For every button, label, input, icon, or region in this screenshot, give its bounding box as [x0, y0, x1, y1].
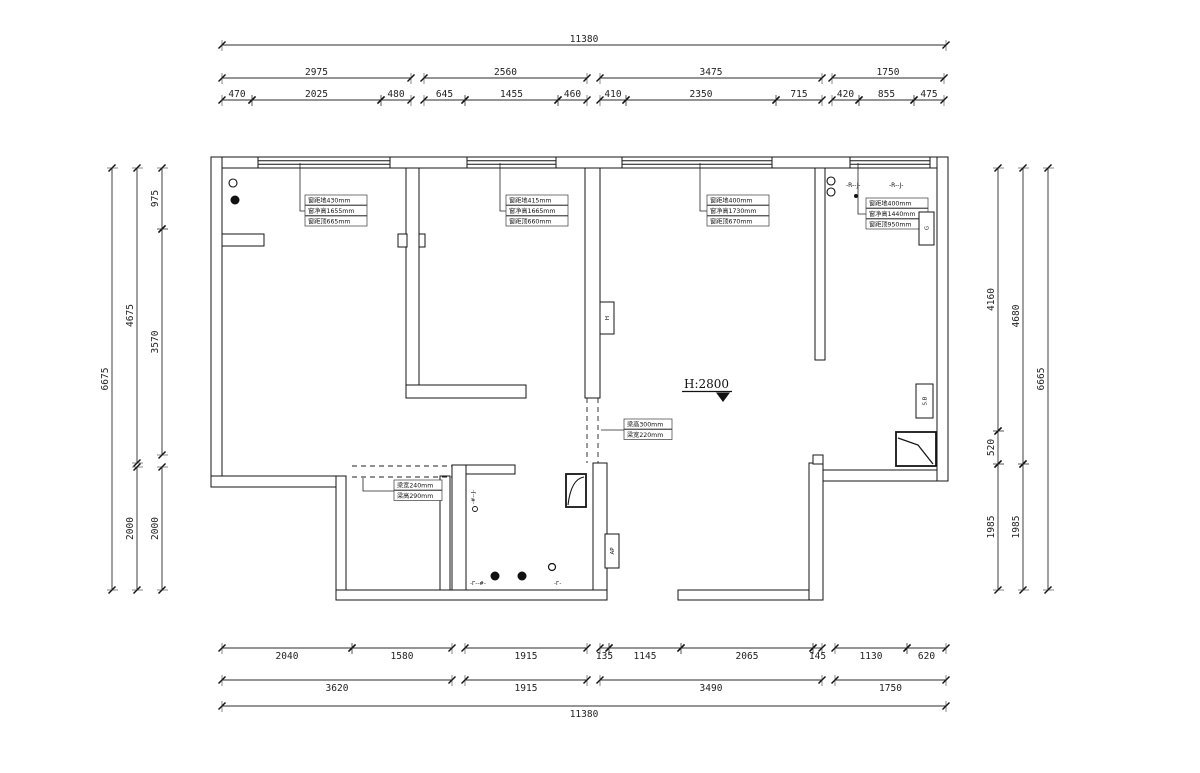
- annotation-text: 窗距地400mm: [869, 200, 911, 208]
- leader-line: [363, 478, 394, 491]
- dim-label: 2560: [494, 67, 517, 78]
- wall-nub-right: [419, 234, 425, 247]
- hollow-dot-symbol: [229, 179, 237, 187]
- dim-label: 3475: [700, 67, 723, 78]
- leader-line: [700, 163, 707, 211]
- dim-label: 1915: [515, 683, 538, 694]
- annotation-text: 窗距顶950mm: [869, 221, 911, 229]
- dim-label: 1750: [879, 683, 902, 694]
- pier-top-left: [222, 234, 264, 246]
- hollow-dot-symbol: [827, 188, 835, 196]
- wall-box-ap-label: AP: [610, 547, 616, 555]
- wall-box-g-label: G: [925, 226, 931, 230]
- dim-label: 470: [228, 89, 245, 100]
- wall-lowerright-notch: [813, 455, 823, 464]
- dim-label: 4675: [125, 304, 136, 327]
- gas-meter-dot: [473, 507, 478, 512]
- window-1: [258, 157, 390, 168]
- window-frame: [258, 157, 390, 168]
- small-dot-symbol: [854, 194, 858, 198]
- annotation-text: 窗距地415mm: [509, 197, 551, 205]
- filled-dot-symbol: [491, 572, 500, 581]
- dim-label: 6675: [100, 368, 111, 391]
- annotation-win2: 窗距地415mm 窗净高1665mm 窗距顶660mm: [500, 163, 568, 226]
- dim-label: 2975: [305, 67, 328, 78]
- wall-nub-left: [398, 234, 407, 247]
- dim-label: 1455: [500, 89, 523, 100]
- annotation-text: 窗净高1665mm: [509, 207, 555, 215]
- leader-line: [300, 163, 305, 211]
- annotation-text: 窗距地430mm: [308, 197, 350, 205]
- annotation-text: 梁高290mm: [397, 492, 433, 500]
- entry-symbol-label: -Г-: [554, 581, 561, 587]
- dim-label: 715: [790, 89, 807, 100]
- dim-label: 1985: [1011, 516, 1022, 539]
- dim-label: 460: [564, 89, 581, 100]
- window-frame: [622, 157, 772, 168]
- wall-lowerleft-horizontal: [211, 476, 345, 487]
- wall-box-h-label: H: [605, 316, 611, 320]
- annotation-text: 梁高300mm: [627, 421, 663, 429]
- wall-lowerleft-vertical: [336, 476, 346, 600]
- floor-plan-canvas[interactable]: -R--J- -R--J- -#--J- -Г--#- -Г- H:2800 窗…: [0, 0, 1200, 773]
- dim-label: 1580: [391, 651, 414, 662]
- symbols-layer: -R--J- -R--J- -#--J- -Г--#- -Г- H:2800: [229, 177, 936, 587]
- annotation-text: 梁宽240mm: [397, 482, 433, 490]
- dim-label: 3570: [150, 330, 161, 353]
- window-frame: [850, 157, 930, 168]
- wall-bottom-right: [678, 590, 823, 600]
- dim-label: 620: [918, 651, 935, 662]
- annotation-win4: 窗距地400mm 窗净高1440mm 窗距顶950mm: [858, 163, 928, 229]
- wall-bedroom2-right: [585, 168, 600, 398]
- elevation-triangle-icon: [716, 393, 730, 403]
- filled-dot-symbol: [231, 196, 240, 205]
- hollow-dot-symbol: [827, 177, 835, 185]
- dim-label: 520: [986, 439, 997, 456]
- dim-label: 1145: [634, 651, 657, 662]
- window-3: [622, 157, 772, 168]
- wall-kitchen-right: [593, 463, 607, 590]
- dim-label: 4160: [986, 288, 997, 311]
- dim-label: 480: [387, 89, 404, 100]
- wall-outer-left: [211, 157, 222, 487]
- dim-label: 4680: [1011, 304, 1022, 327]
- elevation-label: H:2800: [684, 377, 729, 391]
- dim-label: 1915: [515, 651, 538, 662]
- dim-label: 410: [604, 89, 621, 100]
- annotation-text: 窗距地400mm: [710, 197, 752, 205]
- window-2: [467, 157, 556, 168]
- annotation-text: 窗距顶670mm: [710, 218, 752, 226]
- dim-label: 1985: [986, 516, 997, 539]
- dim-label: 6665: [1036, 368, 1047, 391]
- annotation-win1: 窗距地430mm 窗净高1655mm 窗距顶665mm: [300, 163, 367, 226]
- wall-outer-right: [937, 157, 948, 481]
- floor-plan-page: -R--J- -R--J- -#--J- -Г--#- -Г- H:2800 窗…: [0, 0, 1200, 773]
- filled-dot-symbol: [518, 572, 527, 581]
- dim-label: 2065: [736, 651, 759, 662]
- dim-label: 475: [920, 89, 937, 100]
- dim-label: 11380: [570, 709, 599, 720]
- gas-symbol-label: -R--J-: [889, 182, 903, 189]
- leader-line: [500, 163, 506, 211]
- dim-label: 2000: [150, 517, 161, 540]
- annotation-text: 窗净高1440mm: [869, 210, 915, 218]
- dim-label: 3490: [700, 683, 723, 694]
- wall-bottom-left: [336, 590, 607, 600]
- dimensions-layer: 1138029752560347517504702025480645145546…: [100, 34, 1054, 720]
- wall-boxes-layer: H AP S.B G: [600, 212, 934, 568]
- dim-label: 2040: [276, 651, 299, 662]
- wall-box-sb-label: S.B: [923, 396, 929, 405]
- wall-bedroom2-bottom: [406, 385, 526, 398]
- dim-label: 135: [596, 651, 613, 662]
- dim-label: 2025: [305, 89, 328, 100]
- annotation-text: 窗净高1730mm: [710, 207, 756, 215]
- hollow-dot-symbol: [549, 564, 556, 571]
- annotation-text: 窗距顶665mm: [308, 218, 350, 226]
- wall-rightroom-bottom: [823, 470, 948, 481]
- annotation-beam-center: 梁高300mm 梁宽220mm: [601, 419, 672, 440]
- window-frame: [467, 157, 556, 168]
- dim-label: 855: [878, 89, 895, 100]
- flue-box: [566, 474, 586, 507]
- dim-label: 1750: [877, 67, 900, 78]
- annotation-text: 梁宽220mm: [627, 431, 663, 439]
- entry-symbol-label: -Г--#-: [470, 581, 486, 587]
- dim-label: 3620: [326, 683, 349, 694]
- annotation-win3: 窗距地400mm 窗净高1730mm 窗距顶670mm: [700, 163, 769, 226]
- annotation-beam-left: 梁宽240mm 梁高290mm: [363, 478, 442, 501]
- dim-label: 2000: [125, 517, 136, 540]
- dim-label: 975: [150, 190, 161, 207]
- annotation-text: 窗净高1655mm: [308, 207, 354, 215]
- wall-kitchen-left: [452, 465, 466, 590]
- wall-lowerright-vertical: [809, 463, 823, 600]
- dim-label: 420: [837, 89, 854, 100]
- gas-symbol-vertical-label: -#--J-: [471, 490, 477, 504]
- dim-label: 1130: [860, 651, 883, 662]
- window-4: [850, 157, 930, 168]
- wall-bedroom1-right: [406, 168, 419, 398]
- dim-label: 645: [436, 89, 453, 100]
- dim-label: 2350: [690, 89, 713, 100]
- dim-label: 145: [809, 651, 826, 662]
- wall-living-partition: [815, 168, 825, 360]
- dim-label: 11380: [570, 34, 599, 45]
- annotation-text: 窗距顶660mm: [509, 218, 551, 226]
